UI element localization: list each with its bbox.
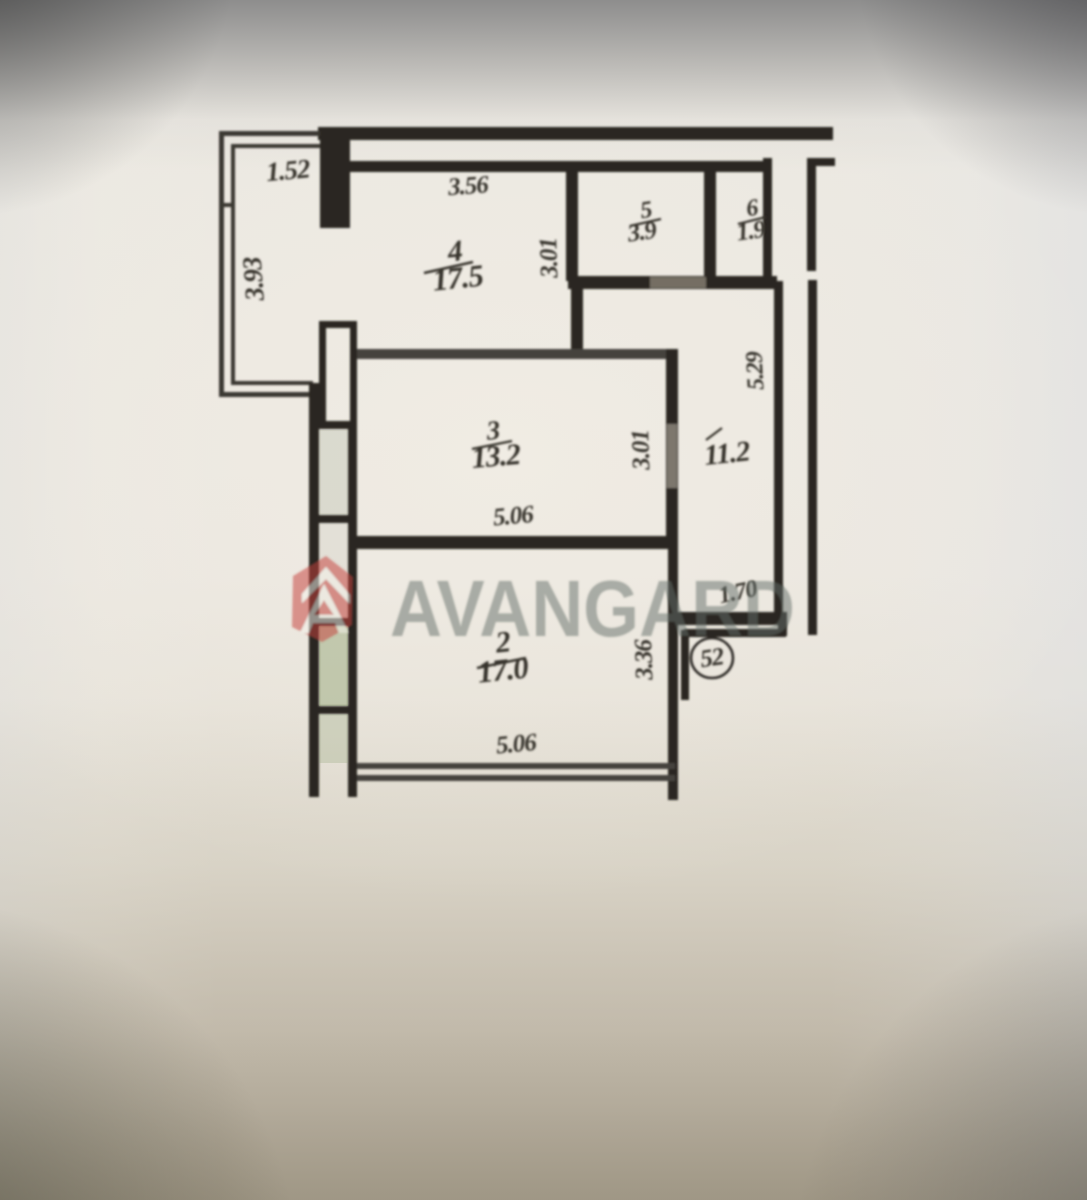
- svg-text:3.93: 3.93: [237, 256, 270, 303]
- svg-text:17.5: 17.5: [431, 258, 485, 298]
- svg-text:3.01: 3.01: [627, 430, 655, 472]
- svg-text:AVANGARD: AVANGARD: [390, 564, 795, 653]
- svg-text:5.29: 5.29: [741, 350, 769, 390]
- svg-text:5.06: 5.06: [492, 501, 535, 531]
- svg-text:1.52: 1.52: [265, 153, 311, 187]
- svg-text:13.2: 13.2: [470, 438, 522, 475]
- svg-text:11.2: 11.2: [703, 435, 752, 472]
- svg-text:3.01: 3.01: [535, 238, 563, 280]
- svg-text:17.0: 17.0: [476, 650, 530, 690]
- svg-text:5.06: 5.06: [495, 729, 538, 759]
- svg-text:3.9: 3.9: [625, 217, 659, 248]
- svg-text:1.9: 1.9: [735, 216, 768, 247]
- svg-text:3.56: 3.56: [446, 171, 490, 201]
